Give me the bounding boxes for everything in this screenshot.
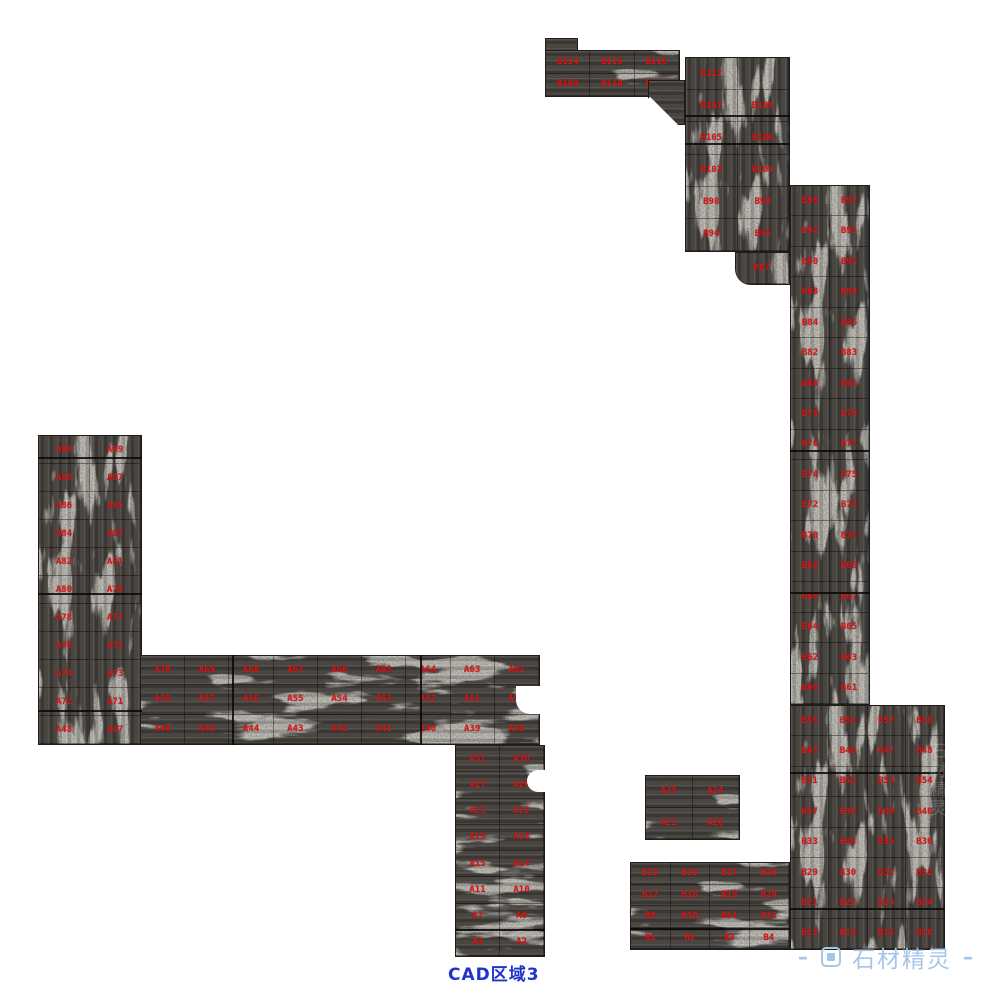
stone-tile[interactable]: B93 <box>830 216 869 246</box>
stone-tile[interactable]: A79 <box>90 576 141 604</box>
stone-tile[interactable]: B90 <box>791 247 830 277</box>
grid-divider <box>38 710 142 712</box>
grid-divider <box>38 593 142 595</box>
stone-tile[interactable]: A74 <box>39 660 90 688</box>
stone-tile[interactable]: B107 <box>686 90 738 122</box>
tile-label: B91 <box>841 257 857 267</box>
stone-tile[interactable]: B80 <box>791 369 830 399</box>
tile-label: A44 <box>243 724 259 734</box>
stone-tile[interactable]: A41 <box>362 715 406 744</box>
stone-tile[interactable]: A48 <box>39 716 90 744</box>
stone-tile[interactable]: A53 <box>362 685 406 714</box>
tile-label: A83 <box>107 529 123 539</box>
tile-label: B15 <box>878 928 894 938</box>
tile-label: B112 <box>700 69 722 79</box>
stone-tile[interactable]: B24 <box>906 888 944 918</box>
tile-label: B115 <box>601 57 623 67</box>
tile-label: A6 <box>516 911 527 921</box>
stone-tile[interactable]: A47 <box>90 716 141 744</box>
stone-tile[interactable]: B76 <box>791 430 830 460</box>
stone-tile[interactable]: A23 <box>456 799 500 825</box>
tile-label: B94 <box>703 229 719 239</box>
stone-tile[interactable]: B82 <box>791 338 830 368</box>
watermark-dash-right: – <box>963 945 975 969</box>
stone-tile[interactable]: B62 <box>791 643 830 673</box>
stone-tile[interactable]: A20 <box>693 808 740 840</box>
grid-divider <box>685 143 790 145</box>
tile-label: B26 <box>682 868 698 878</box>
stone-tile[interactable]: B94 <box>686 219 738 251</box>
stone-tile[interactable]: A67 <box>274 656 318 685</box>
stone-tile[interactable]: A73 <box>90 660 141 688</box>
tile-label: A53 <box>376 694 392 704</box>
stone-tile[interactable]: A39 <box>451 715 495 744</box>
stone-tile[interactable]: A76 <box>39 632 90 660</box>
tile-label: B36 <box>916 837 932 847</box>
tile-label: A68 <box>243 665 259 675</box>
stone-tile[interactable]: B32 <box>906 858 944 888</box>
stone-tile[interactable]: A38 <box>495 715 539 744</box>
stone-tile[interactable]: B85 <box>830 308 869 338</box>
tile-label: B69 <box>841 561 857 571</box>
stone-tile[interactable]: A57 <box>185 685 229 714</box>
tile-label: B64 <box>802 622 818 632</box>
stone-tile[interactable]: B27 <box>710 863 750 885</box>
tile-label: B114 <box>557 57 579 67</box>
stone-tile[interactable]: A18 <box>500 825 544 851</box>
tile-label: A15 <box>469 859 485 869</box>
tile-label: B92 <box>802 226 818 236</box>
stone-tile[interactable]: B103 <box>686 155 738 187</box>
stone-tile[interactable]: B105 <box>686 122 738 154</box>
stone-tile[interactable]: A55 <box>274 685 318 714</box>
stone-tile[interactable]: B104 <box>738 155 790 187</box>
tile-label: B32 <box>916 868 932 878</box>
brand-watermark: – 石材精灵 – <box>798 940 975 974</box>
tile-label: B88 <box>802 287 818 297</box>
stone-tile[interactable]: B31 <box>868 858 906 888</box>
tile-label: A23 <box>469 806 485 816</box>
tile-label: B38 <box>840 807 856 817</box>
stone-tile[interactable]: B78 <box>791 399 830 429</box>
stone-tile[interactable]: A2 <box>500 930 544 956</box>
tile-label: B39 <box>878 807 894 817</box>
stone-tile[interactable]: A69 <box>185 656 229 685</box>
tile-label: A21 <box>661 818 677 828</box>
stone-tile[interactable]: B56 <box>829 706 867 736</box>
stone-tile[interactable]: B26 <box>671 863 711 885</box>
tile-label: B63 <box>841 653 857 663</box>
stone-tile[interactable]: A75 <box>90 632 141 660</box>
tile-label: B24 <box>916 898 932 908</box>
tile-label: B74 <box>802 470 818 480</box>
stone-tile[interactable]: B64 <box>791 613 830 643</box>
tile-label: B19 <box>721 890 737 900</box>
stone-tile[interactable]: A10 <box>500 877 544 903</box>
stone-tile[interactable]: B95 <box>738 219 790 251</box>
tile-label: B13 <box>801 928 817 938</box>
tile-label: B104 <box>752 165 774 175</box>
tile-label: A55 <box>287 694 303 704</box>
stone-tile[interactable]: A14 <box>500 851 544 877</box>
stone-tile[interactable]: A83 <box>90 520 141 548</box>
tile-label: B68 <box>802 561 818 571</box>
tile-label: B109 <box>557 79 579 89</box>
stone-tile[interactable]: B12 <box>750 906 790 928</box>
tile-label: B110 <box>601 79 623 89</box>
tile-label: B116 <box>645 57 667 67</box>
tile-label: A22 <box>513 806 529 816</box>
tile-label: A88 <box>56 473 72 483</box>
stone-tile[interactable]: A24 <box>693 776 740 808</box>
stone-tile[interactable]: B47 <box>868 736 906 766</box>
tile-label: A69 <box>199 665 215 675</box>
tile-label: B46 <box>840 746 856 756</box>
grid-divider <box>232 655 234 745</box>
stone-tile[interactable]: A77 <box>90 604 141 632</box>
tile-label: B33 <box>801 837 817 847</box>
stone-tile[interactable]: B45 <box>791 736 829 766</box>
stone-tile[interactable]: A40 <box>406 715 450 744</box>
stone-tile[interactable] <box>738 58 790 90</box>
tile-label: A24 <box>707 786 723 796</box>
grid-divider <box>685 115 790 117</box>
stone-tile[interactable]: B110 <box>590 74 634 97</box>
tile-label: A85 <box>107 501 123 511</box>
tile-label: B75 <box>841 470 857 480</box>
tile-label: B34 <box>840 837 856 847</box>
stone-cluster-middle-strip: A70A69A68A67A66A65A64A63A62A58A57A56A55A… <box>140 655 540 745</box>
stone-tile[interactable]: B17 <box>631 885 671 907</box>
tile-label: B61 <box>841 683 857 693</box>
stone-tile[interactable]: A15 <box>456 851 500 877</box>
tile-label: B73 <box>841 500 857 510</box>
stone-tile[interactable]: A58 <box>141 685 185 714</box>
stone-tile[interactable]: A82 <box>39 548 90 576</box>
tile-label: A20 <box>707 818 723 828</box>
tile-label: B105 <box>700 133 722 143</box>
stone-tile[interactable]: A19 <box>456 825 500 851</box>
tile-label: B72 <box>802 500 818 510</box>
stone-tile[interactable]: B10 <box>671 906 711 928</box>
stone-tile[interactable]: A64 <box>406 656 450 685</box>
tile-label: A51 <box>464 694 480 704</box>
tile-label: B58 <box>916 716 932 726</box>
stone-tile[interactable]: B55 <box>791 706 829 736</box>
tile-label: A87 <box>107 473 123 483</box>
stone-tile[interactable]: B83 <box>830 338 869 368</box>
tile-label: B76 <box>802 439 818 449</box>
stone-tile[interactable]: B108 <box>738 90 790 122</box>
stone-tile[interactable]: B28 <box>750 863 790 885</box>
stone-tile[interactable]: A6 <box>500 904 544 930</box>
stone-tile[interactable]: B87 <box>736 253 789 284</box>
tile-label: B80 <box>802 379 818 389</box>
tile-label: A46 <box>154 724 170 734</box>
tile-label: A38 <box>508 724 524 734</box>
stone-tile[interactable]: B39 <box>868 797 906 827</box>
tile-label: B18 <box>682 890 698 900</box>
stone-tile[interactable]: B88 <box>791 277 830 307</box>
stone-cluster-upper-right-column: B112B107B108B105B106B103B104B98B99B94B95 <box>685 57 790 252</box>
stone-tile[interactable]: A51 <box>451 685 495 714</box>
grid-divider <box>38 457 142 459</box>
tile-label: A10 <box>513 885 529 895</box>
stone-tile[interactable]: B29 <box>791 858 829 888</box>
tile-label: B4 <box>763 933 774 943</box>
tile-label: B27 <box>721 868 737 878</box>
tile-label: B56 <box>840 716 856 726</box>
stone-tile[interactable]: A22 <box>500 799 544 825</box>
tile-label: A73 <box>107 669 123 679</box>
stone-tile[interactable]: B116 <box>635 51 679 74</box>
tile-label: B30 <box>840 868 856 878</box>
stone-tile[interactable]: B2 <box>671 928 711 950</box>
tile-label: A76 <box>56 641 72 651</box>
tile-label: A3 <box>472 937 483 947</box>
stone-tile[interactable]: B81 <box>830 369 869 399</box>
stone-tile[interactable]: B19 <box>710 885 750 907</box>
tile-label: B70 <box>802 531 818 541</box>
stone-tile[interactable]: B98 <box>686 187 738 219</box>
stone-tile[interactable]: B68 <box>791 552 830 582</box>
stone-tile[interactable]: A56 <box>229 685 273 714</box>
tile-label: B16 <box>916 928 932 938</box>
stone-tile[interactable]: B115 <box>590 51 634 74</box>
tile-label: B21 <box>801 898 817 908</box>
stone-tile[interactable]: B69 <box>830 552 869 582</box>
tile-label: B98 <box>703 197 719 207</box>
stone-tile[interactable]: A88 <box>39 464 90 492</box>
tile-grid: A90A89A88A87A86A85A84A83A82A81A80A79A78A… <box>39 436 141 744</box>
stone-tile[interactable]: B21 <box>791 888 829 918</box>
stone-tile[interactable]: A68 <box>229 656 273 685</box>
stone-tile[interactable]: B97 <box>830 186 869 216</box>
tile-grid: B87 <box>736 253 789 284</box>
stone-tile[interactable]: B4 <box>750 928 790 950</box>
stone-tile[interactable]: B73 <box>830 491 869 521</box>
stone-tile[interactable]: B96 <box>791 186 830 216</box>
tile-label: B93 <box>841 226 857 236</box>
tile-label: A63 <box>464 665 480 675</box>
tile-grid: B96B97B92B93B90B91B88B89B84B85B82B83B80B… <box>791 186 869 704</box>
stone-tile[interactable]: B37 <box>791 797 829 827</box>
tile-label: B52 <box>840 776 856 786</box>
tile-grid: A70A69A68A67A66A65A64A63A62A58A57A56A55A… <box>141 656 539 744</box>
tile-label: A7 <box>472 911 483 921</box>
stone-tile[interactable]: B66 <box>791 582 830 612</box>
tile-label: A39 <box>464 724 480 734</box>
stone-tile[interactable]: B34 <box>829 828 867 858</box>
stone-tile[interactable]: A44 <box>229 715 273 744</box>
stone-cluster-small-middle-cluster: A25A24A21A20 <box>645 775 740 840</box>
stone-tile[interactable]: B35 <box>868 828 906 858</box>
stone-tile[interactable]: A31 <box>456 746 500 772</box>
stone-tile[interactable]: B20 <box>750 885 790 907</box>
stone-tile[interactable]: B9 <box>631 906 671 928</box>
stone-tile[interactable]: B3 <box>710 928 750 950</box>
tile-label: A18 <box>513 832 529 842</box>
tile-label: A42 <box>331 724 347 734</box>
stone-tile[interactable]: A78 <box>39 604 90 632</box>
stone-tile[interactable]: B1 <box>631 928 671 950</box>
stone-tile[interactable]: A42 <box>318 715 362 744</box>
stone-tile[interactable]: B112 <box>686 58 738 90</box>
stone-tile[interactable]: B57 <box>868 706 906 736</box>
brand-logo-inner <box>827 953 835 961</box>
stone-tile[interactable]: B79 <box>830 399 869 429</box>
stone-tile[interactable]: B99 <box>738 187 790 219</box>
stone-tile[interactable]: B38 <box>829 797 867 827</box>
stone-tile[interactable]: A86 <box>39 492 90 520</box>
tile-label: B57 <box>878 716 894 726</box>
stone-tile[interactable]: B11 <box>710 906 750 928</box>
tile-label: B103 <box>700 165 722 175</box>
stone-tile[interactable]: A84 <box>39 520 90 548</box>
tile-label: B40 <box>916 807 932 817</box>
stone-tile[interactable]: B84 <box>791 308 830 338</box>
stone-tile[interactable]: B40 <box>906 797 944 827</box>
stone-tile[interactable]: A11 <box>456 877 500 903</box>
stone-tile[interactable]: B48 <box>906 736 944 766</box>
stone-tile[interactable]: B23 <box>868 888 906 918</box>
stone-tile[interactable]: A80 <box>39 576 90 604</box>
stone-tile[interactable]: B65 <box>830 613 869 643</box>
stone-tile[interactable]: B60 <box>791 674 830 704</box>
tile-label: B51 <box>801 776 817 786</box>
stone-tile[interactable]: B89 <box>830 277 869 307</box>
tile-label: B79 <box>841 409 857 419</box>
stone-tile[interactable]: A7 <box>456 904 500 930</box>
stone-tile[interactable]: B61 <box>830 674 869 704</box>
stone-tile[interactable]: A87 <box>90 464 141 492</box>
stone-tile[interactable]: B109 <box>546 74 590 97</box>
tile-label: A19 <box>469 832 485 842</box>
stone-cluster-right-bottom-block: B55B56B57B58B45B46B47B48B51B52B53B54B37B… <box>790 705 945 950</box>
tile-label: B45 <box>801 746 817 756</box>
stone-tile[interactable]: A30 <box>500 746 544 772</box>
grid-divider <box>630 928 790 930</box>
tile-label: A52 <box>420 694 436 704</box>
tile-label: B85 <box>841 318 857 328</box>
stone-tile[interactable]: B22 <box>829 888 867 918</box>
stone-tile[interactable]: B77 <box>830 430 869 460</box>
stone-tile[interactable]: A21 <box>646 808 693 840</box>
tile-label: B3 <box>724 933 735 943</box>
stone-tile[interactable]: A89 <box>90 436 141 464</box>
stone-tile[interactable]: A63 <box>451 656 495 685</box>
tile-label: A41 <box>376 724 392 734</box>
stone-tile[interactable]: A3 <box>456 930 500 956</box>
stone-tile[interactable]: B74 <box>791 460 830 490</box>
stone-tile[interactable]: B25 <box>631 863 671 885</box>
stone-tile[interactable]: A54 <box>318 685 362 714</box>
tile-label: B2 <box>684 933 695 943</box>
stone-tile[interactable]: A62 <box>495 656 539 685</box>
stone-tile[interactable]: A65 <box>362 656 406 685</box>
stone-tile[interactable]: B46 <box>829 736 867 766</box>
tile-grid: B25B26B27B28B17B18B19B20B9B10B11B12B1B2B… <box>631 863 789 949</box>
stone-tile[interactable]: B114 <box>546 51 590 74</box>
stone-tile[interactable]: B63 <box>830 643 869 673</box>
tile-label: B9 <box>645 911 656 921</box>
brand-name: 石材精灵 <box>852 940 952 974</box>
stone-tile[interactable]: B70 <box>791 521 830 551</box>
tile-label: B65 <box>841 622 857 632</box>
stone-tile[interactable]: B36 <box>906 828 944 858</box>
stone-tile[interactable]: B106 <box>738 122 790 154</box>
tile-label: B48 <box>916 746 932 756</box>
stone-tile[interactable]: B30 <box>829 858 867 888</box>
tile-label: B10 <box>682 911 698 921</box>
tile-label: B81 <box>841 379 857 389</box>
tile-label: B106 <box>752 133 774 143</box>
stone-tile[interactable]: A46 <box>141 715 185 744</box>
tile-label: B82 <box>802 348 818 358</box>
tile-label: A66 <box>331 665 347 675</box>
tile-label: B83 <box>841 348 857 358</box>
tile-label: A74 <box>56 669 72 679</box>
tile-label: B78 <box>802 409 818 419</box>
stone-tile[interactable]: A43 <box>274 715 318 744</box>
grid-divider <box>790 592 870 594</box>
tile-label: A86 <box>56 501 72 511</box>
stone-cluster-right-main-column: B96B97B92B93B90B91B88B89B84B85B82B83B80B… <box>790 185 870 705</box>
stone-tile[interactable]: B92 <box>791 216 830 246</box>
stone-tile[interactable]: B72 <box>791 491 830 521</box>
tile-label: A14 <box>513 859 529 869</box>
stone-tile[interactable]: B67 <box>830 582 869 612</box>
stone-tile[interactable]: A52 <box>406 685 450 714</box>
stone-tile[interactable]: B18 <box>671 885 711 907</box>
tile-grid: B112B107B108B105B106B103B104B98B99B94B95 <box>686 58 789 251</box>
tile-label: A2 <box>516 937 527 947</box>
stone-tile[interactable]: A85 <box>90 492 141 520</box>
stone-tile[interactable]: B71 <box>830 521 869 551</box>
tile-label: A75 <box>107 641 123 651</box>
tile-label: B25 <box>642 868 658 878</box>
tile-label: B87 <box>754 263 770 273</box>
grid-divider <box>420 655 422 745</box>
stone-tile[interactable]: A27 <box>456 772 500 798</box>
tile-label: A54 <box>331 694 347 704</box>
tile-label: A82 <box>56 557 72 567</box>
tile-label: A90 <box>56 445 72 455</box>
tile-label: B29 <box>801 868 817 878</box>
stone-tile[interactable]: A70 <box>141 656 185 685</box>
tile-label: B47 <box>878 746 894 756</box>
tile-grid: B55B56B57B58B45B46B47B48B51B52B53B54B37B… <box>791 706 944 949</box>
tile-label: B99 <box>755 197 771 207</box>
tile-label: A70 <box>154 665 170 675</box>
tile-label: B60 <box>802 683 818 693</box>
stone-tile[interactable]: B75 <box>830 460 869 490</box>
shape-cutout <box>527 770 545 792</box>
stone-tile[interactable]: A81 <box>90 548 141 576</box>
stone-tile[interactable]: A25 <box>646 776 693 808</box>
tile-label: B28 <box>761 868 777 878</box>
stone-tile[interactable]: A66 <box>318 656 362 685</box>
stone-tile[interactable]: B33 <box>791 828 829 858</box>
stone-tile[interactable]: A90 <box>39 436 90 464</box>
stone-tile[interactable]: A45 <box>185 715 229 744</box>
tile-label: A25 <box>661 786 677 796</box>
stone-tile[interactable]: B91 <box>830 247 869 277</box>
stone-tile[interactable]: B58 <box>906 706 944 736</box>
tile-label: B17 <box>642 890 658 900</box>
tile-label: B1 <box>645 933 656 943</box>
tile-label: B95 <box>755 229 771 239</box>
